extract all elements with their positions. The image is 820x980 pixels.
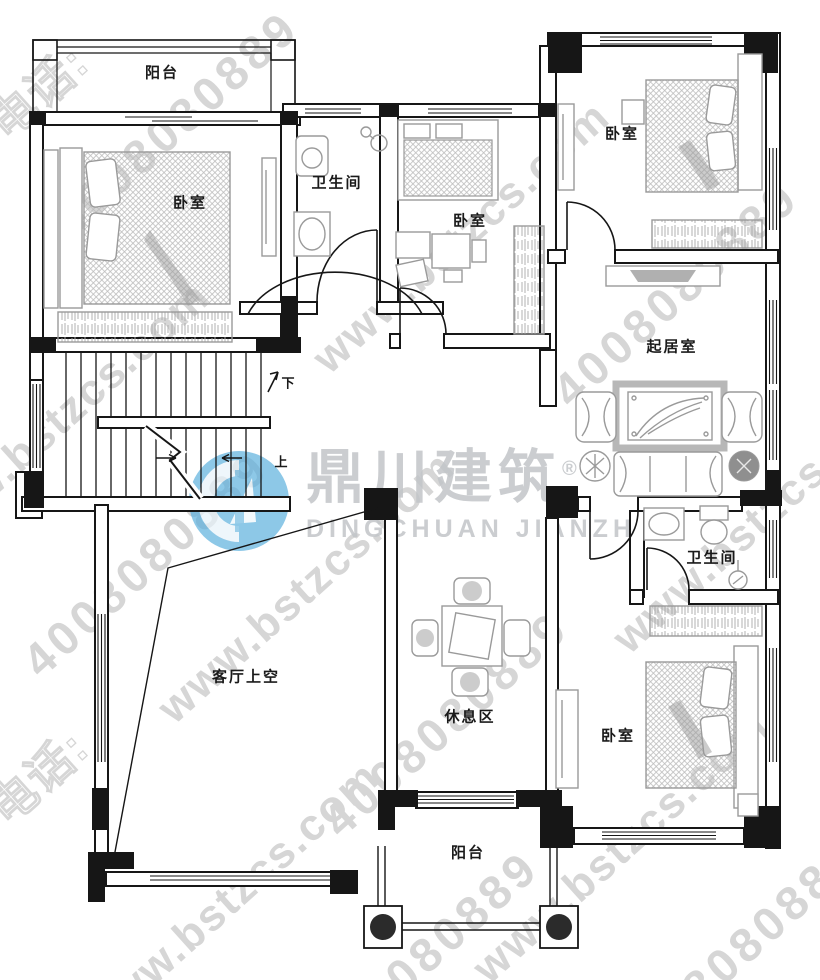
door-icon [567,202,615,250]
room-label-void: 客厅上空 [212,666,280,687]
column-icon [546,914,572,940]
door-icon [647,548,689,590]
bed-icon [734,646,758,808]
tv-icon [630,270,696,282]
wardrobe-icon [58,312,232,342]
void-diagonal [112,508,378,868]
living-room-furniture [576,266,762,496]
chair-icon [472,240,486,262]
pillow-icon [436,124,462,138]
stairs-icon [66,352,278,499]
stair-label-up: 上 [274,452,287,471]
column-icon [370,914,396,940]
wardrobe-icon [650,606,762,636]
dresser-icon [556,690,578,788]
room-label-bedroom-br: 卧室 [601,725,635,746]
room-label-bedroom-tl: 卧室 [173,192,207,213]
shelf-icon [44,150,58,308]
armchair-icon [722,392,762,442]
bedroom-tr-furniture [558,54,762,248]
toilet-icon [700,506,728,520]
wardrobe-icon [652,220,762,248]
chair-icon [504,620,530,656]
pillow-icon [705,84,736,125]
pillow-icon [86,213,121,262]
room-label-balcony-top: 阳台 [145,62,179,83]
washer-icon [296,136,328,176]
room-label-bathroom-right: 卫生间 [686,547,737,568]
room-label-balcony-bottom: 阳台 [451,842,485,863]
bedroom-br-furniture [556,606,762,816]
stair-direction-arrow [268,372,278,392]
chair-icon [444,270,462,282]
bed-icon [738,54,762,190]
stair-label-down: 下 [281,373,294,392]
nightstand-icon [622,100,644,124]
nightstand-icon [738,794,758,816]
room-label-rest: 休息区 [444,706,495,727]
table-icon [432,234,470,268]
room-label-bathroom-top: 卫生间 [311,172,362,193]
chair-icon [396,259,428,286]
tv-cabinet-icon [262,158,276,256]
pillow-icon [404,124,430,138]
room-label-bedroom-tm: 卧室 [453,210,487,231]
floor-plan [0,0,820,980]
bed-icon [60,148,82,308]
armchair-icon [576,392,616,442]
pillow-icon [700,666,733,709]
rest-area-furniture [412,578,530,696]
room-label-bedroom-tr: 卧室 [605,123,639,144]
room-label-living: 起居室 [646,336,697,357]
sofa-icon [614,452,722,496]
tv-cabinet-icon [558,104,574,190]
pillow-icon [706,131,736,172]
floor-plan-canvas: 电话: 4008080889 www.bstzcs.com 4008080889… [0,0,820,980]
desk-icon [396,232,430,258]
pillow-icon [85,158,120,207]
closet-icon [514,226,544,334]
